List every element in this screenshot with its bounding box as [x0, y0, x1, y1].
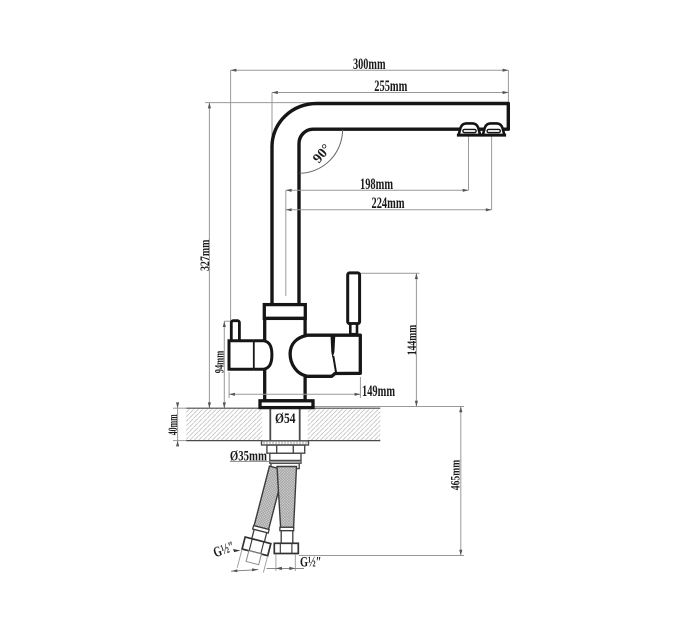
svg-text:300mm: 300mm [353, 56, 386, 73]
svg-text:255mm: 255mm [374, 78, 407, 95]
svg-text:40mm: 40mm [166, 414, 180, 435]
svg-text:Ø35mm: Ø35mm [230, 448, 267, 464]
svg-text:Ø54: Ø54 [275, 411, 296, 427]
svg-text:224mm: 224mm [372, 195, 405, 212]
svg-text:149mm: 149mm [362, 383, 395, 400]
svg-text:94mm: 94mm [213, 351, 227, 374]
svg-text:465mm: 465mm [449, 459, 463, 490]
svg-text:327mm: 327mm [198, 239, 212, 271]
svg-text:144mm: 144mm [405, 324, 419, 355]
svg-text:G½″: G½″ [300, 555, 322, 571]
svg-text:198mm: 198mm [360, 176, 393, 193]
